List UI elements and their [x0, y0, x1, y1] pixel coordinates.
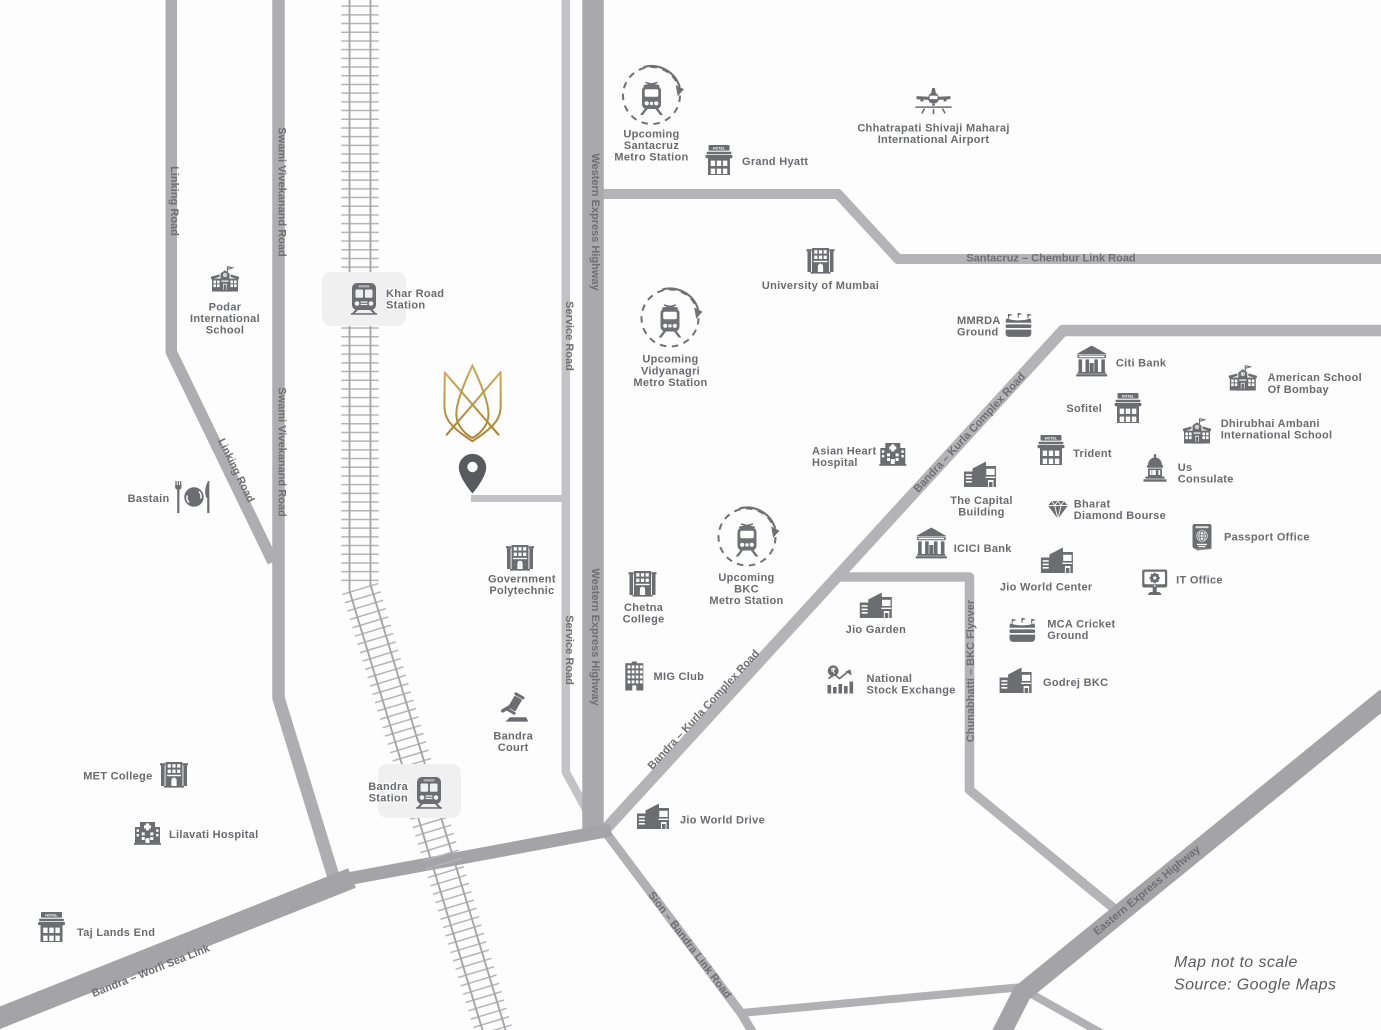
svg-text:IT Office: IT Office [1176, 575, 1223, 587]
svg-text:Jio World Center: Jio World Center [1000, 581, 1093, 593]
svg-text:Taj Lands End: Taj Lands End [77, 927, 155, 939]
svg-text:BKC: BKC [734, 583, 759, 595]
svg-text:Bharat: Bharat [1074, 498, 1111, 510]
svg-text:Bastain: Bastain [128, 493, 170, 505]
svg-text:Vidyanagri: Vidyanagri [641, 365, 700, 377]
svg-text:Eastern Express Highway: Eastern Express Highway [1091, 843, 1203, 938]
svg-text:Podar: Podar [209, 302, 242, 314]
svg-text:American School: American School [1268, 372, 1362, 384]
svg-text:MET College: MET College [83, 771, 152, 783]
svg-text:Sofitel: Sofitel [1066, 403, 1102, 415]
svg-text:Ground: Ground [1047, 630, 1089, 642]
svg-text:Western Express Highway: Western Express Highway [589, 153, 601, 291]
svg-text:MCA Cricket: MCA Cricket [1047, 618, 1115, 630]
svg-text:Station: Station [369, 793, 408, 805]
svg-text:Lilavati Hospital: Lilavati Hospital [169, 829, 258, 841]
svg-text:Court: Court [498, 742, 529, 754]
svg-text:Metro Station: Metro Station [709, 595, 783, 607]
svg-text:MMRDA: MMRDA [957, 315, 1001, 327]
svg-text:Godrej BKC: Godrej BKC [1043, 677, 1108, 689]
svg-text:Linking Road: Linking Road [168, 166, 180, 236]
svg-text:The Capital: The Capital [950, 495, 1013, 507]
svg-text:Swami Vivekanand Road: Swami Vivekanand Road [276, 127, 288, 256]
svg-text:Polytechnic: Polytechnic [489, 585, 554, 597]
svg-text:MIG Club: MIG Club [654, 671, 705, 683]
svg-text:Grand Hyatt: Grand Hyatt [742, 156, 808, 168]
svg-text:International: International [190, 313, 260, 325]
svg-text:Hospital: Hospital [812, 457, 858, 469]
svg-text:International School: International School [1221, 430, 1333, 442]
svg-text:University of Mumbai: University of Mumbai [762, 280, 879, 292]
svg-text:Upcoming: Upcoming [623, 129, 679, 141]
svg-text:Us: Us [1178, 462, 1193, 474]
svg-text:Trident: Trident [1073, 448, 1112, 460]
svg-text:International Airport: International Airport [878, 134, 990, 146]
svg-text:Western Express Highway: Western Express Highway [589, 568, 601, 706]
svg-text:Upcoming: Upcoming [718, 572, 774, 584]
svg-text:Of Bombay: Of Bombay [1268, 384, 1330, 396]
svg-text:Bandra: Bandra [493, 731, 533, 743]
svg-text:Jio Garden: Jio Garden [846, 624, 906, 636]
svg-text:ICICI Bank: ICICI Bank [954, 543, 1013, 555]
svg-text:Passport Office: Passport Office [1224, 531, 1310, 543]
svg-text:Government: Government [488, 573, 556, 585]
svg-text:Chunabhatti – BKC Flyover: Chunabhatti – BKC Flyover [965, 599, 977, 742]
svg-text:Metro Station: Metro Station [633, 377, 707, 389]
svg-text:Service Road: Service Road [563, 615, 575, 685]
svg-text:National: National [867, 673, 913, 685]
svg-text:Dhirubhai Ambani: Dhirubhai Ambani [1221, 418, 1320, 430]
svg-text:Station: Station [386, 300, 425, 312]
svg-text:Chhatrapati Shivaji Maharaj: Chhatrapati Shivaji Maharaj [857, 122, 1009, 134]
svg-text:Santacruz – Chembur Link Road: Santacruz – Chembur Link Road [966, 253, 1135, 265]
svg-text:Upcoming: Upcoming [642, 354, 698, 366]
svg-text:Service Road: Service Road [563, 301, 575, 371]
svg-text:Diamond Bourse: Diamond Bourse [1074, 510, 1166, 522]
svg-text:Sion – Bandra Link Road: Sion – Bandra Link Road [645, 890, 733, 1001]
svg-text:Metro Station: Metro Station [614, 152, 688, 164]
svg-text:Consulate: Consulate [1178, 473, 1234, 485]
svg-text:School: School [206, 325, 244, 337]
svg-text:Asian Heart: Asian Heart [812, 446, 876, 458]
svg-text:Chetna: Chetna [624, 602, 664, 614]
svg-text:Stock Exchange: Stock Exchange [867, 685, 956, 697]
svg-text:Santacruz: Santacruz [624, 140, 679, 152]
svg-text:Source: Google Maps: Source: Google Maps [1174, 977, 1336, 994]
svg-text:Jio World Drive: Jio World Drive [680, 815, 765, 827]
svg-text:Bandra: Bandra [368, 781, 408, 793]
svg-text:Map not to scale: Map not to scale [1174, 954, 1298, 971]
svg-text:Swami Vivekanand Road: Swami Vivekanand Road [276, 387, 288, 516]
svg-text:Citi Bank: Citi Bank [1116, 358, 1167, 370]
svg-text:Building: Building [958, 507, 1004, 519]
svg-text:College: College [623, 614, 665, 626]
svg-text:Bandra – Kurla Complex Road: Bandra – Kurla Complex Road [646, 648, 762, 772]
svg-text:Khar Road: Khar Road [386, 288, 444, 300]
svg-text:Ground: Ground [957, 327, 999, 339]
